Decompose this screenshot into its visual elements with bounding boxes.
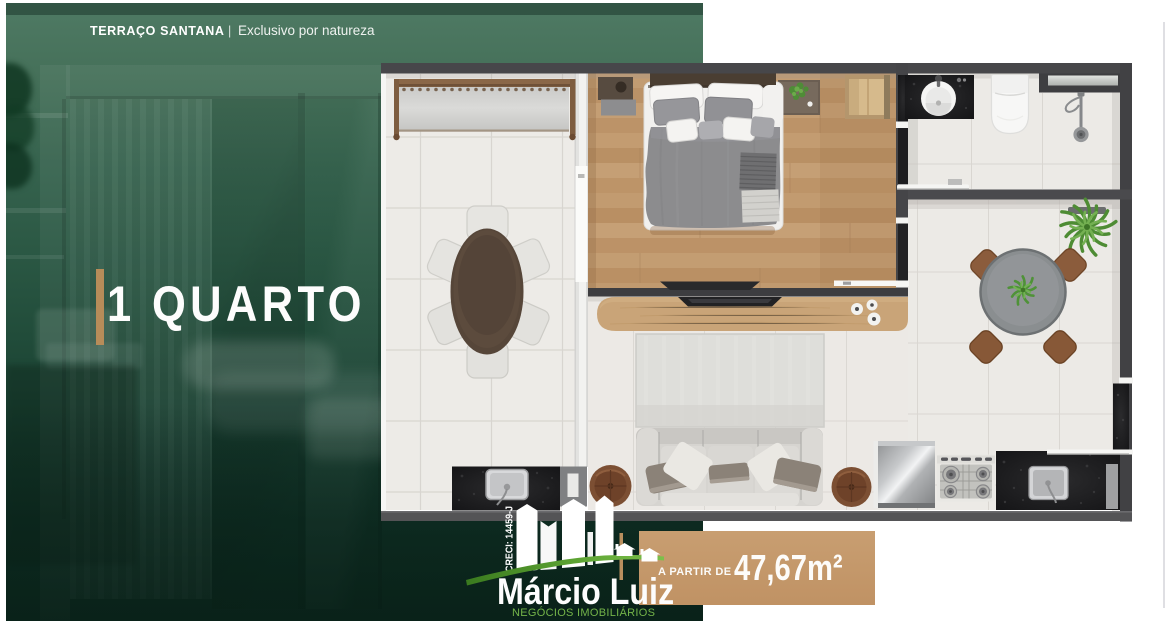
svg-text:CRECI: 14459-J: CRECI: 14459-J <box>505 506 516 572</box>
